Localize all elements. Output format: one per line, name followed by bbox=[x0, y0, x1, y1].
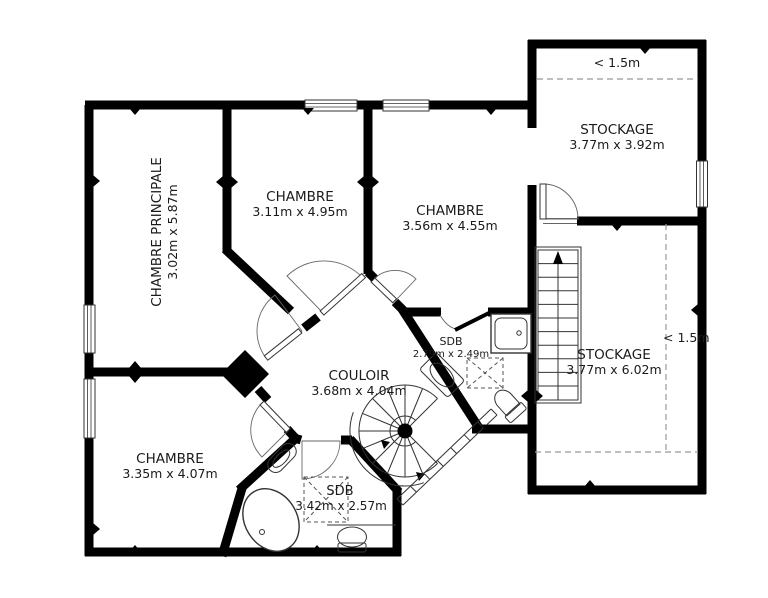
room-name: SDB bbox=[440, 335, 463, 348]
room-label-chambre-sw: CHAMBRE 3.35m x 4.07m bbox=[122, 451, 217, 481]
room-dims: 3.68m x 4.04m bbox=[311, 383, 406, 398]
door-arc-icon bbox=[302, 441, 340, 479]
floorplan-page: CHAMBRE PRINCIPALE 3.02m x 5.87m CHAMBRE… bbox=[0, 0, 768, 598]
height-limit-label-top: < 1.5m bbox=[594, 55, 641, 70]
room-dims: 3.42m x 2.57m bbox=[295, 499, 387, 513]
window-icon bbox=[697, 161, 708, 207]
window-icon bbox=[84, 379, 95, 438]
window-icon bbox=[84, 305, 95, 353]
room-dims: 3.77m x 3.92m bbox=[569, 137, 664, 152]
room-name: STOCKAGE bbox=[580, 122, 653, 138]
room-name: CHAMBRE bbox=[136, 451, 204, 467]
room-dims: 2.79m x 2.49m bbox=[413, 349, 489, 360]
room-labels: CHAMBRE PRINCIPALE 3.02m x 5.87m CHAMBRE… bbox=[122, 55, 709, 513]
room-dims: 3.56m x 4.55m bbox=[402, 218, 497, 233]
window-icon bbox=[383, 100, 429, 111]
floorplan-canvas: CHAMBRE PRINCIPALE 3.02m x 5.87m CHAMBRE… bbox=[0, 0, 768, 598]
room-label-chambre-n: CHAMBRE 3.56m x 4.55m bbox=[402, 203, 497, 233]
room-name: SDB bbox=[326, 484, 353, 499]
room-label-stockage-e: STOCKAGE 3.77m x 6.02m bbox=[566, 347, 661, 377]
door-leaf-icon bbox=[455, 313, 489, 330]
room-label-chambre-nw: CHAMBRE 3.11m x 4.95m bbox=[252, 189, 347, 219]
room-dims: 3.35m x 4.07m bbox=[122, 466, 217, 481]
shower-icon bbox=[491, 314, 531, 353]
room-label-stockage-ne: STOCKAGE 3.77m x 3.92m bbox=[569, 122, 664, 152]
room-dims: 3.77m x 6.02m bbox=[566, 362, 661, 377]
spiral-staircase-icon bbox=[350, 385, 438, 486]
room-label-couloir: COULOIR 3.68m x 4.04m bbox=[311, 368, 406, 398]
room-label-sdb-south: SDB 3.42m x 2.57m bbox=[295, 484, 387, 513]
room-name: CHAMBRE bbox=[416, 203, 484, 219]
room-name: CHAMBRE bbox=[266, 189, 334, 205]
room-dims: 3.11m x 4.95m bbox=[252, 204, 347, 219]
door-leaf-icon bbox=[540, 184, 546, 219]
height-limit-label-right: < 1.5m bbox=[663, 330, 710, 345]
room-name: CHAMBRE PRINCIPALE bbox=[149, 157, 165, 307]
door-arc-icon bbox=[440, 315, 456, 329]
room-name: COULOIR bbox=[329, 368, 390, 384]
room-dims: 3.02m x 5.87m bbox=[165, 184, 180, 279]
room-label-chambre-principale: CHAMBRE PRINCIPALE 3.02m x 5.87m bbox=[149, 157, 180, 307]
door-arc-icon bbox=[543, 184, 578, 219]
room-name: STOCKAGE bbox=[577, 347, 650, 363]
straight-staircase-icon bbox=[535, 247, 581, 403]
velux-icon bbox=[467, 358, 503, 388]
